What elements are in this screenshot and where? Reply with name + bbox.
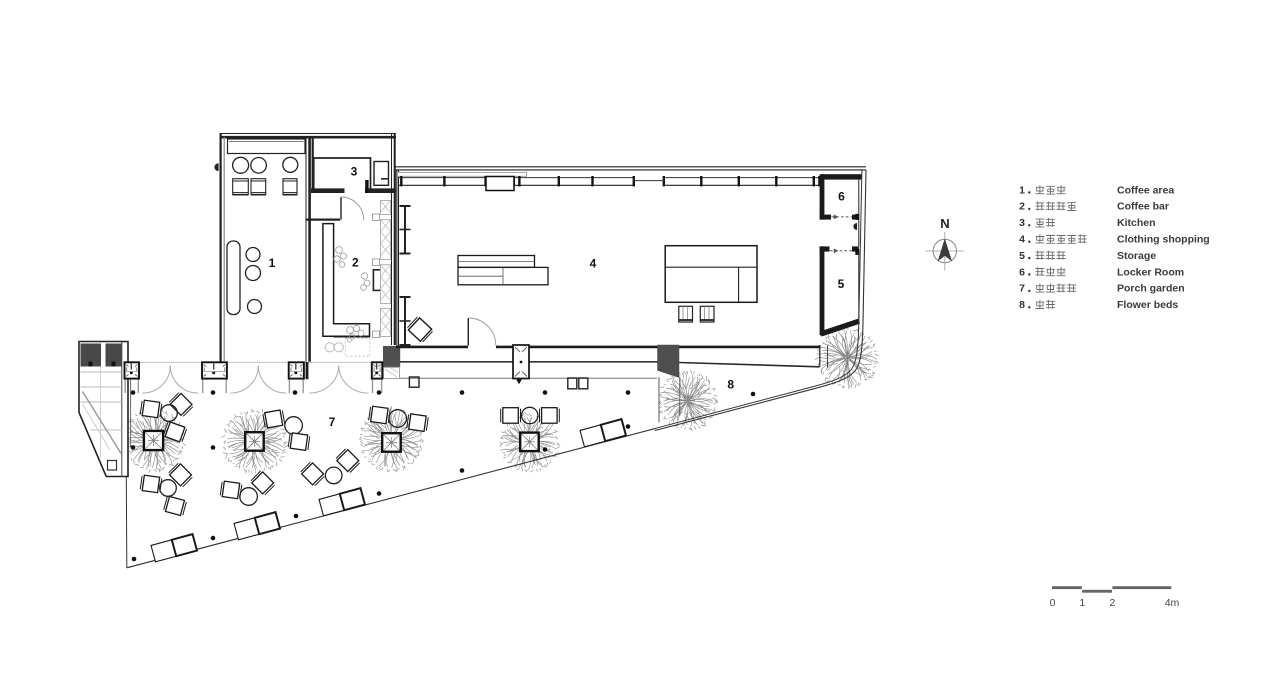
svg-text:5: 5 [838, 277, 845, 291]
svg-text:7: 7 [329, 415, 336, 429]
svg-text:Coffee area: Coffee area [1117, 184, 1174, 196]
svg-text:1: 1 [1019, 184, 1025, 196]
svg-text:Clothing shopping: Clothing shopping [1117, 234, 1210, 246]
svg-text:Flower beds: Flower beds [1117, 299, 1178, 311]
svg-text:Coffee bar: Coffee bar [1117, 201, 1169, 213]
svg-text:Kitchen: Kitchen [1117, 217, 1156, 229]
svg-text:Porch garden: Porch garden [1117, 283, 1185, 295]
svg-text:1: 1 [1079, 597, 1085, 609]
svg-text:4m: 4m [1165, 597, 1180, 609]
svg-text:8: 8 [1019, 299, 1025, 311]
svg-text:N: N [940, 216, 949, 231]
svg-text:2: 2 [1019, 201, 1025, 213]
svg-text:Storage: Storage [1117, 250, 1156, 262]
svg-text:2: 2 [352, 256, 359, 270]
svg-text:Locker Room: Locker Room [1117, 266, 1184, 278]
svg-text:7: 7 [1019, 283, 1025, 295]
svg-text:6: 6 [838, 190, 845, 204]
svg-text:3: 3 [1019, 217, 1025, 229]
svg-text:1: 1 [269, 256, 276, 270]
svg-text:4: 4 [590, 257, 597, 271]
svg-text:2: 2 [1109, 597, 1115, 609]
svg-text:0: 0 [1050, 597, 1056, 609]
svg-text:8: 8 [727, 378, 734, 392]
svg-text:5: 5 [1019, 250, 1025, 262]
svg-text:3: 3 [351, 165, 358, 179]
svg-text:6: 6 [1019, 266, 1025, 278]
svg-text:4: 4 [1019, 234, 1025, 246]
